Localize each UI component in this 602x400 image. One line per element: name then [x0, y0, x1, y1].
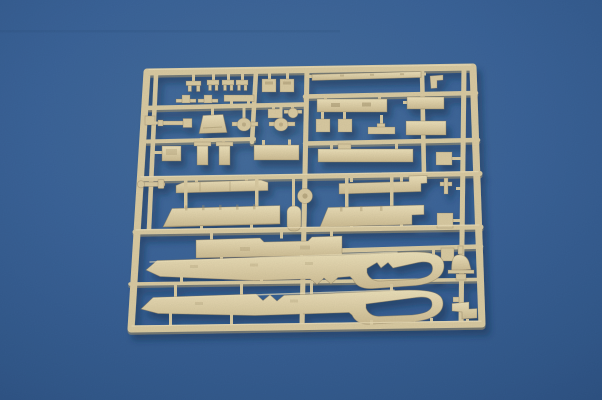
sprue-photo — [0, 0, 602, 400]
photo-canvas — [0, 0, 602, 400]
photo-grain — [0, 0, 602, 400]
